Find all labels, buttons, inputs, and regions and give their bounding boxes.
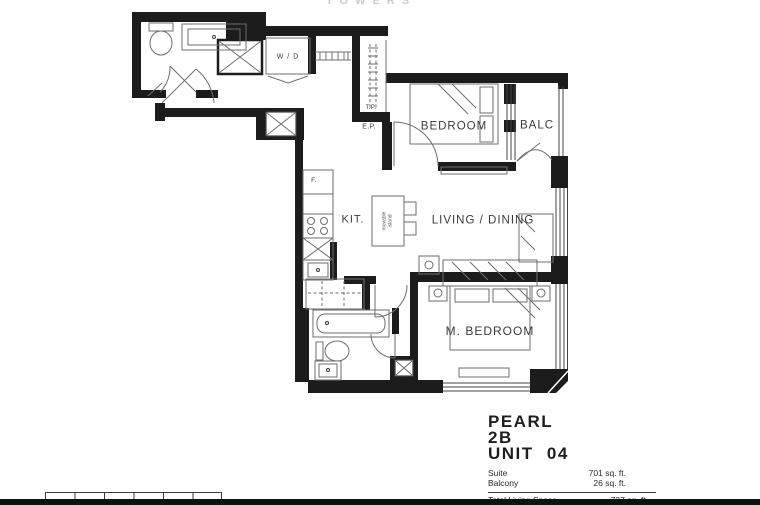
fridge-label: F. bbox=[311, 178, 317, 185]
kitchen-island bbox=[372, 196, 416, 246]
panel-shaft-ladder bbox=[368, 40, 386, 112]
suite-area-label: Suite bbox=[488, 468, 507, 478]
master-bedroom-door-swing bbox=[375, 285, 407, 317]
balcony-door-swing bbox=[517, 143, 552, 161]
room-label-kitchen: KIT. bbox=[342, 215, 365, 226]
ensuite-sink-icon bbox=[315, 361, 341, 380]
shaft-x-icon bbox=[266, 112, 296, 136]
bottom-border-bar bbox=[0, 499, 760, 505]
room-label-balcony: BALC bbox=[520, 120, 554, 132]
balcony-area-value: 26 sq. ft. bbox=[593, 478, 626, 488]
toilet-icon bbox=[149, 23, 173, 55]
laundry-closet bbox=[266, 38, 310, 83]
balcony-area-label: Balcony bbox=[488, 478, 518, 488]
room-label-electrical-panel: E.P. bbox=[362, 124, 376, 131]
divider-rule bbox=[488, 492, 656, 493]
room-label-telephone-panel: T.P. bbox=[366, 105, 377, 111]
shelf-closet bbox=[315, 52, 351, 60]
bathroom-door-swing bbox=[160, 66, 196, 92]
area-rows: Suite 701 sq. ft. Balcony 26 sq. ft. bbox=[488, 468, 626, 488]
project-name: PEARL bbox=[488, 414, 660, 430]
room-label-laundry: W / D bbox=[277, 54, 300, 61]
suite-area-row: Suite 701 sq. ft. bbox=[488, 468, 626, 478]
unit-number: UNIT 04 bbox=[488, 446, 660, 462]
balcony-area-row: Balcony 26 sq. ft. bbox=[488, 478, 626, 488]
room-label-living-dining: LIVING / DINING bbox=[432, 215, 535, 227]
small-shaft-x-icon bbox=[395, 360, 413, 376]
kitchen-counter-run bbox=[303, 170, 333, 280]
bed-icon bbox=[410, 84, 498, 144]
island-label: movable island bbox=[382, 206, 394, 236]
balcony-railing bbox=[559, 86, 563, 156]
room-label-bedroom: BEDROOM bbox=[421, 121, 487, 133]
bathtub-icon bbox=[313, 310, 389, 337]
room-label-master-bedroom: M. BEDROOM bbox=[446, 325, 535, 337]
suite-area-value: 701 sq. ft. bbox=[589, 468, 626, 478]
unit-info-block: PEARL 2B UNIT 04 Suite 701 sq. ft. Balco… bbox=[488, 414, 660, 505]
ensuite-toilet-icon bbox=[316, 341, 349, 361]
floorplan-page: TOWERS bbox=[0, 0, 760, 505]
ensuite-door-swing bbox=[371, 334, 395, 358]
